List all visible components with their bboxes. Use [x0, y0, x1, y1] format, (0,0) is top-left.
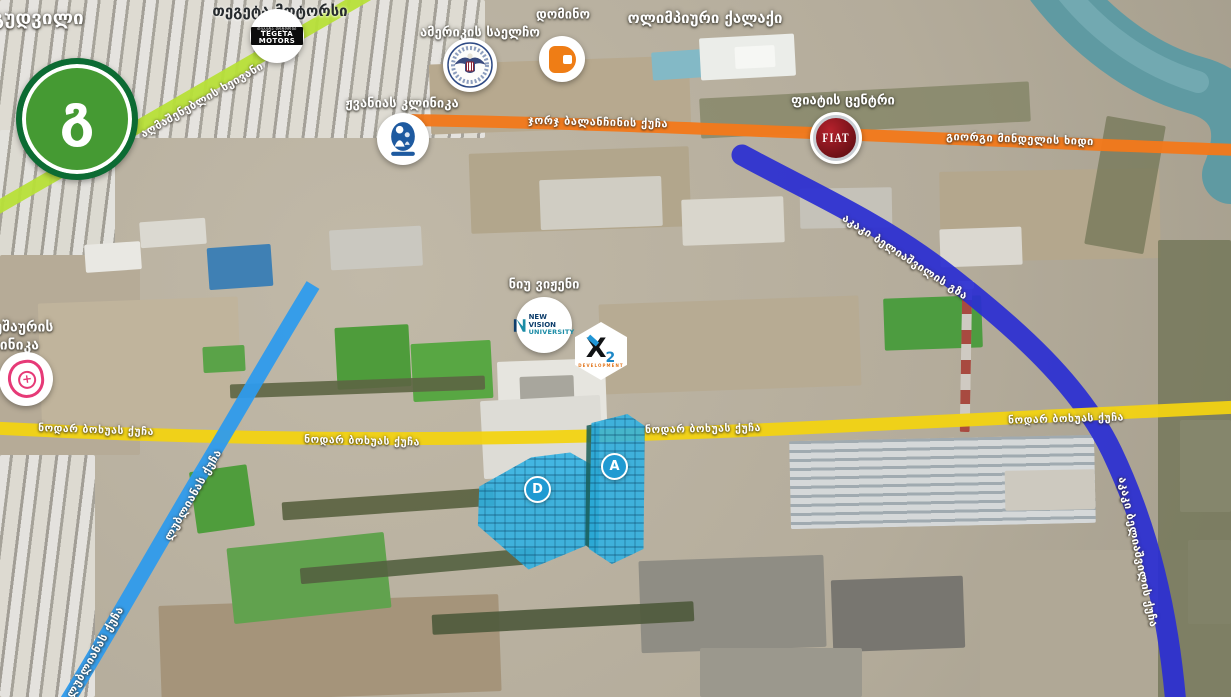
map-canvas: აღმაშენებლის ხეივანი ჯორჯ ბალანჩინის ქუჩ…: [0, 0, 1231, 697]
fiat-badge: FIAT: [810, 112, 862, 164]
domino-logo-icon: [549, 46, 576, 73]
new-vision-mark-icon: [513, 318, 525, 333]
x2-logo-icon: X2: [586, 335, 617, 362]
road-label-bokhua-3: ნოდარ ბოხუას ქუჩა: [645, 422, 761, 436]
fiat-center-label: ფიატის ცენტრი: [791, 94, 895, 109]
domino-badge: [539, 36, 585, 82]
block-a-letter: A: [609, 459, 619, 474]
zhvania-clinic-badge: [377, 113, 429, 165]
us-embassy-seal-icon: [447, 42, 493, 88]
goodwill-badge: გ: [16, 58, 138, 180]
us-embassy-label: ამერიკის საელჩო: [420, 26, 540, 41]
domino-logo-notch: [563, 55, 572, 64]
ghudushauri-logo-icon: +: [6, 358, 47, 401]
zhvania-clinic-logo-icon: [381, 117, 425, 161]
block-d-marker: D: [524, 476, 551, 503]
us-embassy-badge: [443, 38, 497, 92]
ghudushauri-label-line1: ღუდუშაურის: [0, 320, 53, 338]
ghudushauri-badge: +: [0, 352, 53, 406]
building-a-highlight: [584, 414, 646, 564]
domino-label: დომინო: [536, 8, 590, 23]
tegeta-badge: თეგეტა მოტორსი TEGETA MOTORS: [250, 9, 304, 63]
block-d-letter: D: [532, 482, 543, 497]
fiat-logo-text: FIAT: [822, 131, 849, 145]
ghudushauri-clinic-label: ღუდუშაურის კლინიკა: [0, 320, 53, 355]
olympic-city-label: ოლიმპიური ქალაქი: [628, 9, 783, 27]
new-vision-text-line1: NEW VISION: [529, 314, 575, 329]
block-a-marker: A: [601, 453, 628, 480]
goodwill-label: გუდვილი: [0, 7, 84, 29]
tegeta-logo-latin: TEGETA MOTORS: [251, 31, 303, 45]
goodwill-logo-icon: გ: [60, 88, 95, 144]
new-vision-logo-icon: NEW VISION UNIVERSITY: [513, 314, 575, 336]
x2-logo-2: 2: [606, 350, 616, 366]
new-vision-label: ნიუ ვიჟენი: [509, 278, 580, 293]
new-vision-text-line2: UNIVERSITY: [529, 329, 575, 336]
tegeta-logo-icon: თეგეტა მოტორსი TEGETA MOTORS: [251, 27, 303, 45]
fiat-logo-icon: FIAT: [813, 115, 859, 161]
ghudushauri-cross-icon: +: [17, 370, 37, 390]
zhvania-clinic-label: ჟვანიას კლინიკა: [345, 97, 458, 112]
new-vision-badge: NEW VISION UNIVERSITY: [516, 297, 572, 353]
